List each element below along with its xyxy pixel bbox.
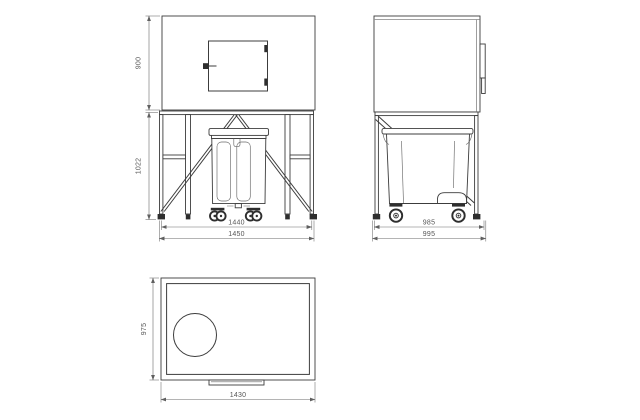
- front-caster-right: [246, 208, 262, 221]
- top-depth-dim: 975: [141, 323, 148, 335]
- front-width-outer-dim: 1450: [228, 231, 245, 238]
- side-depth-inner-dim: 985: [423, 220, 435, 227]
- side-depth-outer-dim: 995: [423, 231, 435, 238]
- front-bin: [209, 129, 269, 221]
- top-view: 975 1430: [141, 278, 315, 403]
- top-outer-outline: [161, 278, 315, 380]
- front-frame-height-dim: 1022: [136, 158, 143, 175]
- front-hood-cabinet: [162, 16, 315, 110]
- side-door-hinge-bar: [480, 44, 485, 94]
- side-bin: [382, 128, 473, 221]
- front-hood-height-dim: 900: [136, 57, 143, 69]
- top-handle-tab: [209, 380, 264, 385]
- side-view: 985 995: [373, 16, 486, 242]
- side-caster-front: [389, 204, 402, 222]
- side-caster-rear: [452, 204, 465, 222]
- top-width-dim: 1430: [230, 392, 247, 399]
- front-caster-left: [210, 208, 226, 221]
- side-hood-cabinet: [374, 16, 485, 112]
- side-dimensions: 985 995: [373, 220, 486, 242]
- door-hinge-icon: [264, 45, 267, 52]
- technical-drawing-canvas: 900 1022 1440 1450: [0, 0, 640, 420]
- door-hinge-icon: [264, 79, 267, 86]
- side-bin-fender: [438, 193, 467, 204]
- drawing-sheet: 900 1022 1440 1450: [0, 0, 640, 420]
- front-view: 900 1022 1440 1450: [136, 16, 318, 242]
- front-width-inner-dim: 1440: [228, 220, 245, 227]
